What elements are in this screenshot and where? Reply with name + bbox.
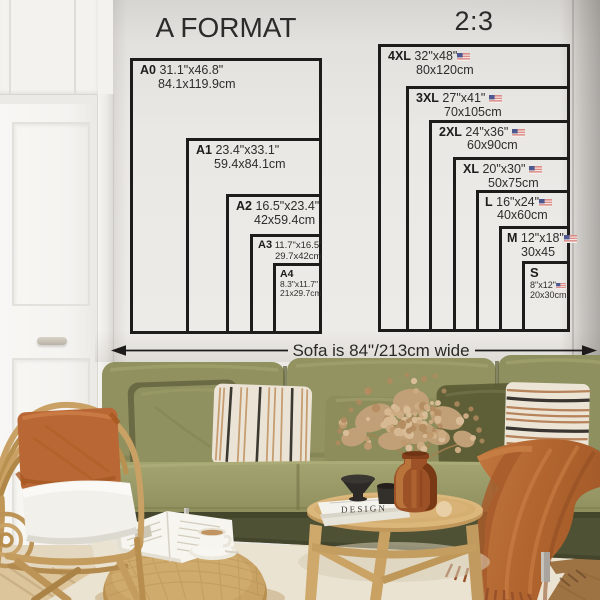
svg-text:DESIGN: DESIGN <box>341 503 388 515</box>
